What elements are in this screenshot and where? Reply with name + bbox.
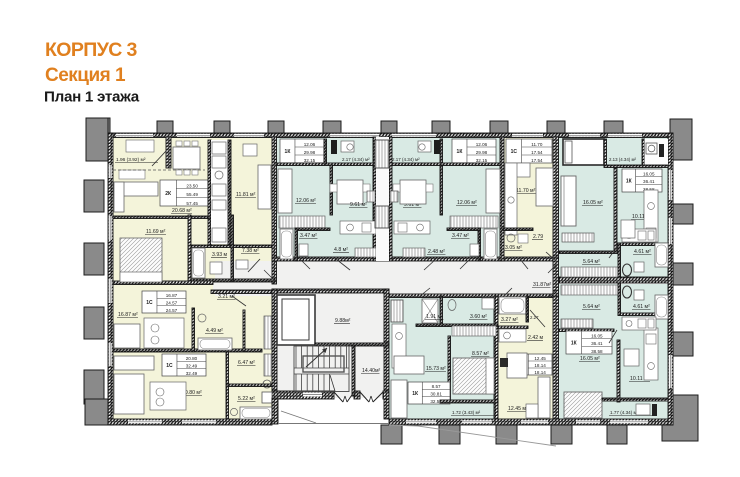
svg-text:36.41: 36.41 xyxy=(643,179,655,184)
svg-text:17.54: 17.54 xyxy=(531,158,543,163)
svg-text:1К: 1К xyxy=(412,391,419,397)
svg-text:3.27 м²: 3.27 м² xyxy=(501,317,518,323)
svg-text:3.93 м: 3.93 м xyxy=(212,252,228,258)
svg-text:24.57: 24.57 xyxy=(166,300,178,305)
svg-text:1К: 1К xyxy=(285,149,292,155)
svg-text:12.06: 12.06 xyxy=(476,142,488,147)
svg-text:12.06: 12.06 xyxy=(304,142,316,147)
svg-text:20.68 м²: 20.68 м² xyxy=(172,208,192,214)
svg-text:3.47 м²: 3.47 м² xyxy=(300,233,317,239)
svg-text:29.98: 29.98 xyxy=(304,150,316,155)
svg-text:29.98: 29.98 xyxy=(476,150,488,155)
svg-text:5.22 м²: 5.22 м² xyxy=(238,396,255,402)
svg-text:16.87 м²: 16.87 м² xyxy=(118,312,138,318)
svg-text:12.06 м²: 12.06 м² xyxy=(296,198,316,204)
svg-text:11.69 м²: 11.69 м² xyxy=(146,229,166,235)
svg-text:9.88м²: 9.88м² xyxy=(335,318,351,324)
svg-text:2К: 2К xyxy=(165,191,172,197)
svg-text:3.60 м²: 3.60 м² xyxy=(470,314,487,320)
svg-text:32.15: 32.15 xyxy=(476,158,488,163)
svg-text:5.64 м²: 5.64 м² xyxy=(583,259,600,265)
svg-text:24.57: 24.57 xyxy=(166,308,178,313)
svg-text:16.05 м²: 16.05 м² xyxy=(583,200,603,206)
svg-text:20.80: 20.80 xyxy=(186,356,198,361)
svg-text:4.61 м²: 4.61 м² xyxy=(633,304,650,310)
svg-text:12.06 м²: 12.06 м² xyxy=(457,200,477,206)
svg-text:36.41: 36.41 xyxy=(591,341,603,346)
svg-text:55.49: 55.49 xyxy=(186,192,198,197)
svg-text:План 1 этажа: План 1 этажа xyxy=(44,89,140,106)
svg-text:4.8 м²: 4.8 м² xyxy=(334,247,348,253)
svg-text:15.73 м²: 15.73 м² xyxy=(426,366,446,372)
svg-text:3.21 м²: 3.21 м² xyxy=(218,294,235,300)
svg-text:3.05 м²: 3.05 м² xyxy=(505,245,522,251)
svg-text:1.72 (3.43) м²: 1.72 (3.43) м² xyxy=(452,410,481,415)
svg-text:1С: 1С xyxy=(146,300,153,306)
svg-text:2.17 (4.34) м²: 2.17 (4.34) м² xyxy=(392,157,420,162)
svg-text:16.87: 16.87 xyxy=(166,293,178,298)
svg-text:1.96 (3.92) м²: 1.96 (3.92) м² xyxy=(116,157,146,163)
svg-text:18.14: 18.14 xyxy=(534,363,546,368)
svg-text:32.15: 32.15 xyxy=(304,158,316,163)
svg-text:32.49: 32.49 xyxy=(186,363,198,368)
svg-text:7.38 м²: 7.38 м² xyxy=(242,248,259,254)
svg-text:Секция 1: Секция 1 xyxy=(45,65,126,86)
svg-text:1.77 (4.34) м²: 1.77 (4.34) м² xyxy=(610,410,639,415)
svg-text:14.40м²: 14.40м² xyxy=(362,368,381,374)
svg-text:8.57 м²: 8.57 м² xyxy=(472,351,489,357)
svg-text:11.70 м²: 11.70 м² xyxy=(516,188,536,194)
svg-text:11.70: 11.70 xyxy=(531,142,543,147)
svg-text:2.48 м²: 2.48 м² xyxy=(428,249,445,255)
svg-text:32.49: 32.49 xyxy=(186,371,198,376)
svg-text:8.57: 8.57 xyxy=(432,384,441,389)
svg-text:1С: 1С xyxy=(166,363,173,369)
svg-text:31.87м²: 31.87м² xyxy=(533,282,552,288)
svg-text:12.45 м²: 12.45 м² xyxy=(508,406,528,412)
svg-text:57.45: 57.45 xyxy=(186,201,198,206)
svg-text:1К: 1К xyxy=(457,149,464,155)
svg-text:16.05: 16.05 xyxy=(591,333,603,338)
svg-text:2.42 м: 2.42 м xyxy=(528,335,544,341)
svg-text:1К: 1К xyxy=(626,178,633,184)
svg-text:9.61 м²: 9.61 м² xyxy=(350,202,367,208)
svg-text:5.64 м²: 5.64 м² xyxy=(583,304,600,310)
svg-text:2.79: 2.79 xyxy=(533,234,543,240)
svg-text:12.45: 12.45 xyxy=(534,356,546,361)
svg-text:КОРПУС 3: КОРПУС 3 xyxy=(45,39,138,61)
svg-text:16.05 м²: 16.05 м² xyxy=(580,356,600,362)
svg-text:16.05: 16.05 xyxy=(643,171,655,176)
svg-text:30.81: 30.81 xyxy=(430,391,442,396)
svg-text:4.61 м²: 4.61 м² xyxy=(634,249,651,255)
svg-text:18.14: 18.14 xyxy=(534,370,546,375)
svg-text:2.13 (4.34) м²: 2.13 (4.34) м² xyxy=(609,157,636,162)
svg-text:38.58: 38.58 xyxy=(591,349,603,354)
svg-text:11.81 м²: 11.81 м² xyxy=(236,192,256,198)
svg-text:3.47 м²: 3.47 м² xyxy=(452,233,469,239)
svg-text:17.54: 17.54 xyxy=(531,150,543,155)
svg-text:1С: 1С xyxy=(511,149,518,155)
svg-text:6.47 м²: 6.47 м² xyxy=(238,360,255,366)
svg-text:2.17 (4.34) м²: 2.17 (4.34) м² xyxy=(342,157,370,162)
svg-text:4.49 м²: 4.49 м² xyxy=(206,328,223,334)
svg-text:23.50: 23.50 xyxy=(186,183,198,188)
svg-text:1К: 1К xyxy=(571,340,578,346)
